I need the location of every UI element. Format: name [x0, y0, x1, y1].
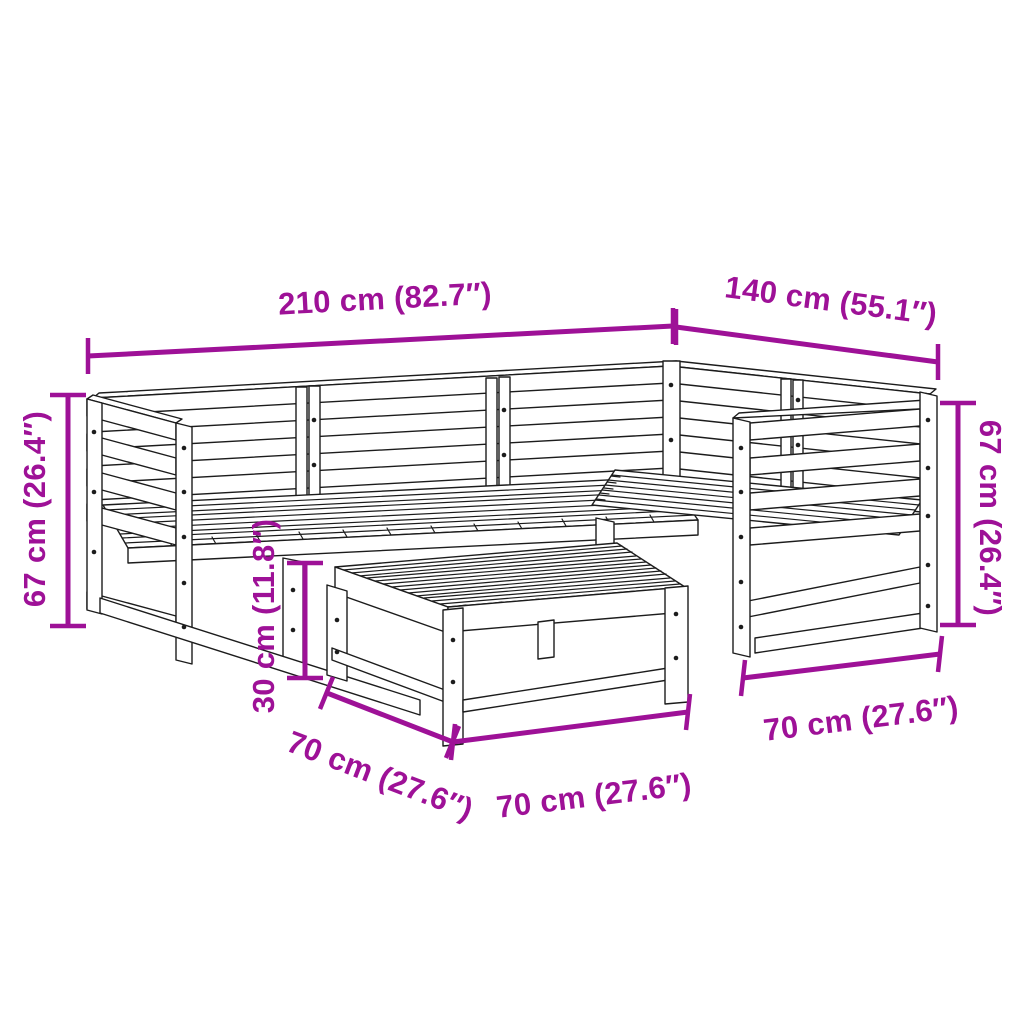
- dim-line-total-width: [88, 308, 673, 374]
- sofa-set-line-art: [0, 0, 1024, 1024]
- dim-label-table-height: 30 cm (11.8″): [246, 519, 282, 714]
- dim-line-height-right: [940, 403, 976, 625]
- dim-label-height-right: 67 cm (26.4″): [972, 420, 1008, 616]
- dim-line-height-left: [50, 395, 86, 626]
- dimension-diagram: 210 cm (82.7″) 140 cm (55.1″) 67 cm (26.…: [0, 0, 1024, 1024]
- dim-label-height-left: 67 cm (26.4″): [17, 411, 53, 607]
